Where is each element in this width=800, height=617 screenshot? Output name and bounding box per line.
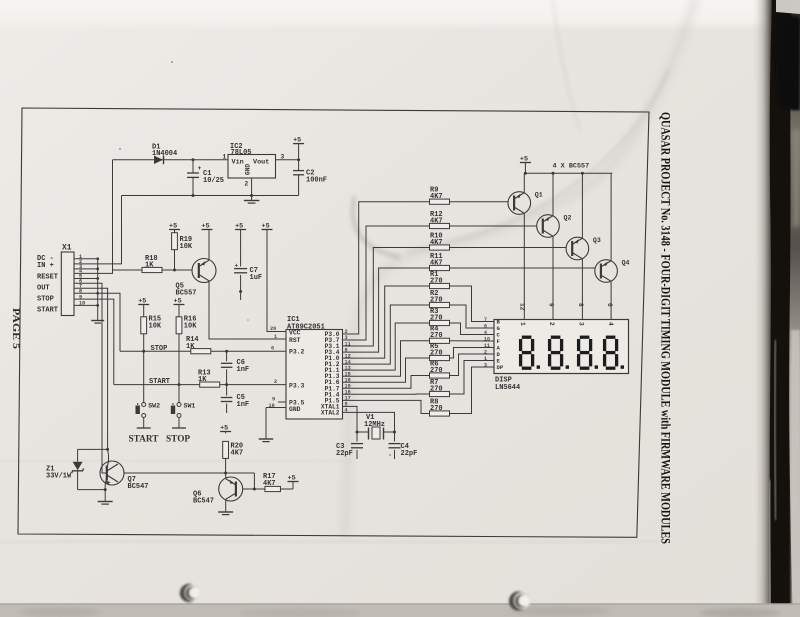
svg-text:4K7: 4K7 (231, 450, 244, 458)
svg-text:270: 270 (430, 349, 443, 357)
svg-text:BC547: BC547 (193, 498, 214, 506)
svg-text:BC547: BC547 (128, 483, 149, 491)
svg-text:RST: RST (289, 337, 301, 344)
svg-text:10K: 10K (180, 243, 193, 251)
svg-text:Q2: Q2 (564, 215, 572, 222)
svg-text:9: 9 (272, 397, 275, 403)
svg-text:+: + (235, 263, 239, 270)
svg-text:+5: +5 (174, 298, 182, 306)
svg-text:270: 270 (430, 367, 443, 375)
svg-text:1K: 1K (198, 376, 207, 384)
svg-text:+5: +5 (520, 156, 528, 164)
svg-text:9: 9 (79, 294, 82, 300)
svg-text:SW1: SW1 (184, 403, 196, 410)
svg-text:DP: DP (497, 364, 504, 371)
svg-text:9: 9 (548, 303, 555, 307)
svg-text:START: START (37, 307, 58, 315)
svg-text:4 X BC557: 4 X BC557 (553, 163, 590, 171)
svg-text:RESET: RESET (37, 274, 58, 282)
svg-text:PAGE 5: PAGE 5 (10, 308, 20, 349)
svg-text:4K7: 4K7 (430, 259, 443, 267)
svg-text:VCC: VCC (289, 329, 301, 336)
svg-text:+5: +5 (288, 475, 296, 483)
svg-text:6: 6 (484, 323, 487, 329)
svg-text:3: 3 (578, 322, 585, 326)
svg-text:270: 270 (430, 385, 443, 393)
svg-text:+5: +5 (293, 137, 301, 145)
svg-text:10/25: 10/25 (203, 177, 224, 185)
svg-text:STOP: STOP (37, 296, 54, 304)
svg-text:12: 12 (519, 303, 526, 311)
svg-text:6: 6 (271, 346, 274, 352)
svg-text:Q1: Q1 (535, 192, 543, 199)
svg-text:Q3: Q3 (593, 237, 601, 244)
svg-text:78L05: 78L05 (231, 149, 252, 157)
svg-text:10: 10 (79, 301, 85, 307)
svg-text:GND: GND (289, 406, 301, 413)
svg-text:OUT: OUT (37, 285, 50, 293)
svg-text:6: 6 (606, 303, 613, 307)
svg-text:2: 2 (245, 181, 249, 188)
svg-text:1: 1 (274, 334, 277, 340)
svg-text:STOP: STOP (166, 435, 190, 445)
svg-text:LNS644: LNS644 (495, 384, 520, 392)
svg-text:1: 1 (223, 154, 227, 161)
svg-text:1N4004: 1N4004 (152, 150, 177, 158)
svg-text:Vin: Vin (232, 159, 244, 167)
svg-text:1: 1 (484, 356, 487, 362)
svg-text:+5: +5 (202, 223, 210, 231)
svg-text:270: 270 (430, 332, 443, 340)
svg-text:270: 270 (430, 296, 443, 304)
svg-text:100nF: 100nF (306, 177, 327, 185)
svg-text:4K7: 4K7 (430, 239, 443, 247)
svg-text:4K7: 4K7 (430, 217, 443, 225)
svg-text:Q4: Q4 (622, 260, 630, 267)
svg-text:1K: 1K (145, 262, 154, 270)
svg-text:10: 10 (484, 336, 490, 342)
svg-text:START: START (129, 435, 160, 445)
svg-text:2: 2 (484, 349, 487, 355)
svg-text:XTAL2: XTAL2 (321, 409, 340, 416)
svg-text:7: 7 (484, 317, 487, 323)
svg-text:IN +: IN + (37, 262, 54, 270)
svg-text:BC557: BC557 (176, 290, 197, 298)
svg-text:11: 11 (484, 343, 490, 349)
svg-text:270: 270 (430, 277, 443, 285)
svg-text:12MHz: 12MHz (364, 421, 385, 429)
svg-text:X1: X1 (62, 244, 72, 253)
svg-text:4: 4 (345, 408, 348, 414)
svg-text:4K7: 4K7 (263, 480, 276, 488)
svg-text:+: + (198, 165, 202, 172)
svg-text:1uF: 1uF (250, 274, 263, 282)
svg-text:P3.2: P3.2 (289, 349, 305, 356)
svg-text:33V/1W: 33V/1W (46, 473, 72, 481)
svg-text:2: 2 (548, 322, 555, 326)
svg-text:4: 4 (607, 322, 614, 326)
svg-text:1nF: 1nF (237, 401, 250, 409)
svg-text:Vout: Vout (253, 159, 269, 167)
svg-text:SW2: SW2 (148, 403, 160, 410)
svg-text:1: 1 (519, 322, 526, 326)
svg-text:START: START (149, 378, 170, 386)
svg-text:+5: +5 (235, 223, 243, 231)
svg-text:3: 3 (281, 154, 285, 161)
svg-text:GND: GND (245, 164, 252, 175)
svg-text:2: 2 (274, 379, 277, 385)
svg-text:22pF: 22pF (336, 450, 353, 458)
svg-text:270: 270 (430, 405, 443, 413)
svg-text:10K: 10K (184, 323, 197, 331)
svg-text:10: 10 (269, 403, 275, 409)
svg-text:QUASAR PROJECT No. 3148 - FOUR: QUASAR PROJECT No. 3148 - FOUR-DIGIT TIM… (659, 112, 673, 544)
svg-text:4K7: 4K7 (430, 193, 443, 201)
svg-text:+5: +5 (220, 425, 228, 433)
svg-text:3: 3 (484, 362, 487, 368)
svg-text:22pF: 22pF (401, 450, 418, 458)
svg-text:P3.3: P3.3 (289, 383, 305, 390)
svg-text:1nF: 1nF (237, 366, 250, 374)
svg-text:8: 8 (577, 303, 584, 307)
svg-text:+5: +5 (138, 298, 146, 306)
svg-text:10K: 10K (149, 323, 162, 331)
svg-text:+5: +5 (262, 223, 270, 231)
svg-text:STOP: STOP (151, 345, 168, 353)
svg-text:1K: 1K (186, 343, 195, 351)
svg-text:+5: +5 (169, 223, 177, 231)
svg-text:4: 4 (484, 330, 487, 336)
svg-text:20: 20 (270, 326, 276, 332)
svg-text:270: 270 (430, 314, 443, 322)
